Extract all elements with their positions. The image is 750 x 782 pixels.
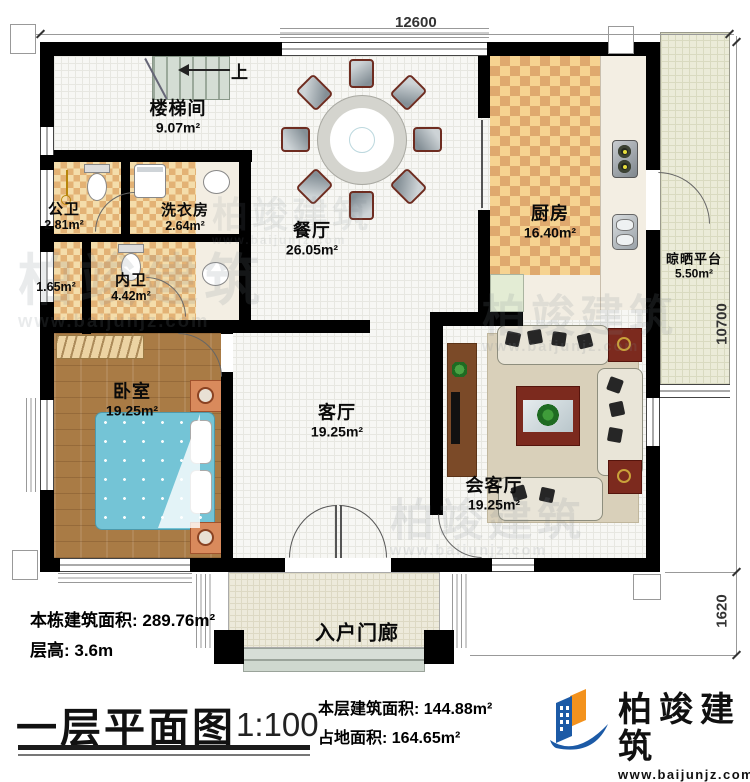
dim-tick: [732, 650, 741, 659]
room-label-dining: 餐厅 26.05m²: [286, 221, 338, 258]
brand-url: www.baijunjz.com: [618, 767, 750, 782]
room-name: 楼梯间: [150, 99, 207, 120]
room-area: 9.07m²: [156, 119, 200, 135]
porch-pillar: [214, 630, 244, 664]
room-area: 19.25m²: [468, 496, 520, 512]
kitchen-passage-floor: [523, 275, 600, 320]
porch-pillar: [424, 630, 454, 664]
door-gap-bedroom: [221, 334, 233, 372]
dim-label-right: 10700: [714, 303, 731, 345]
toilet-bowl: [87, 173, 107, 201]
wall-kitchen-left-lower: [478, 210, 490, 325]
room-area: 2.81m²: [44, 218, 84, 232]
room-area: 5.50m²: [675, 268, 713, 282]
title-underline-thick: [18, 745, 310, 750]
window-bottom-bedroom: [60, 558, 190, 572]
room-area: 19.25m²: [106, 402, 158, 418]
wall-bath-divider: [40, 234, 251, 242]
dim-label-porch: 1620: [714, 594, 731, 627]
wall-stair-bath: [40, 150, 252, 162]
wall-kitchen-left-upper: [478, 56, 490, 118]
toilet-tank: [84, 164, 110, 173]
porch-step: [243, 660, 425, 672]
room-area: 1.65m²: [36, 280, 76, 294]
sofa-pillow: [539, 487, 556, 504]
platform-railing: [660, 384, 730, 398]
room-area: 19.25m²: [311, 423, 363, 439]
window-left-stairwell: [40, 127, 54, 155]
room-label-public-bath: 公卫 2.81m²: [44, 201, 84, 233]
title-underline-thin: [18, 754, 310, 756]
room-name: 入户门廊: [315, 623, 399, 646]
window-sill: [58, 573, 192, 586]
end-table-deco: [617, 469, 631, 483]
room-label-laundry: 洗衣房 2.64m²: [161, 202, 209, 234]
dim-ext-line: [665, 572, 736, 573]
room-area: 16.40m²: [524, 224, 576, 240]
laundry-sink: [203, 170, 230, 194]
room-name: 晾晒平台: [666, 253, 722, 268]
entrance-door-gap: [285, 558, 391, 572]
wall-left: [40, 42, 54, 572]
room-name: 洗衣房: [161, 202, 209, 219]
nightstand-lamp: [197, 387, 214, 404]
land-area-text: 占地面积: 164.65m²: [318, 725, 492, 754]
corner-column: [633, 574, 661, 600]
dining-chair: [349, 191, 374, 220]
stairs-arrow-head: [178, 64, 189, 76]
dining-table-center: [349, 127, 375, 153]
room-label-platform: 晾晒平台 5.50m²: [666, 253, 722, 282]
room-name: 卧室: [113, 382, 151, 403]
stats-block: 本栋建筑面积: 289.76m² 层高: 3.6m: [30, 606, 215, 666]
cabinet-plant: [452, 362, 467, 377]
room-name: 餐厅: [293, 221, 331, 242]
washing-machine-panel: [137, 167, 163, 172]
window-bottom-reception: [492, 558, 534, 572]
room-area: 26.05m²: [286, 241, 338, 257]
brand-logo: [548, 686, 612, 758]
stairs-arrow-line: [188, 69, 230, 71]
footer-areas: 本层建筑面积: 144.88m² 占地面积: 164.65m²: [318, 696, 492, 754]
porch-right-sill: [452, 574, 470, 648]
room-name: 公卫: [48, 201, 80, 218]
room-label-kitchen: 厨房 16.40m²: [524, 204, 576, 241]
dim-line-right: [736, 36, 737, 656]
stat-building-total: 本栋建筑面积: 289.76m²: [30, 606, 215, 636]
entrance-door-leaf: [335, 505, 337, 558]
corner-column: [10, 24, 36, 54]
corner-column: [12, 550, 38, 580]
room-area: 2.64m²: [165, 219, 205, 233]
bath-sink: [202, 262, 229, 286]
table-plant: [537, 404, 559, 426]
room-label-closet: 1.65m²: [36, 280, 76, 294]
room-label-reception: 会客厅 19.25m²: [466, 476, 523, 513]
kitchen-counter: [600, 56, 646, 310]
toilet-tank: [118, 244, 144, 253]
stat-floor-height: 层高: 3.6m: [30, 636, 215, 666]
window-left-bedroom: [40, 400, 54, 490]
room-name: 客厅: [318, 403, 356, 424]
sofa-pillow: [527, 329, 543, 345]
kitchen-sink-basin: [616, 219, 634, 231]
brand-text-block: 柏竣建筑 www.baijunjz.com: [618, 692, 750, 782]
wardrobe: [56, 335, 144, 359]
window-top-dining: [282, 42, 487, 56]
room-label-stairwell: 楼梯间 9.07m²: [150, 99, 207, 136]
floor-area-text: 本层建筑面积: 144.88m²: [318, 696, 492, 725]
dining-chair: [349, 59, 374, 88]
room-label-bedroom: 卧室 19.25m²: [106, 382, 158, 419]
sofa-pillow: [505, 331, 522, 348]
end-table-deco: [617, 337, 631, 351]
entrance-door-leaf: [340, 505, 342, 558]
shower-cord: [66, 170, 68, 196]
room-area: 4.42m²: [111, 289, 151, 303]
wall-right: [646, 42, 660, 572]
window-sill: [26, 398, 39, 492]
wall-living-reception: [430, 312, 443, 515]
porch-step: [243, 648, 425, 660]
dining-chair: [281, 127, 310, 152]
scale-label: 1:100: [236, 706, 319, 744]
window-left-closet: [40, 252, 54, 302]
window-right-reception: [646, 398, 660, 446]
room-name: 会客厅: [466, 476, 523, 497]
room-label-private-bath: 内卫 4.42m²: [111, 272, 151, 304]
tv: [451, 392, 460, 444]
floor-plan-page: { "dimensions": { "top": "12600", "right…: [0, 0, 750, 768]
nightstand-lamp: [197, 529, 214, 546]
room-label-living: 客厅 19.25m²: [311, 403, 363, 440]
room-name: 厨房: [531, 204, 569, 225]
brand-logo-icon: [548, 686, 612, 758]
dim-label-top: 12600: [395, 14, 437, 31]
sofa-pillow: [609, 401, 626, 418]
bed-sheet-fold: [158, 414, 200, 528]
stairs-up-label: 上: [231, 58, 248, 83]
kitchen-sink-basin: [616, 234, 634, 246]
kitchen-sink-counter: [490, 274, 524, 312]
burner-dot: [623, 165, 627, 169]
dining-chair: [413, 127, 442, 152]
wall-bedroom-top: [40, 320, 370, 333]
room-name: 内卫: [115, 272, 147, 289]
sofa-pillow: [551, 331, 567, 347]
brand-name: 柏竣建筑: [618, 692, 750, 767]
dim-ext-line: [470, 655, 736, 656]
dim-line-top: [36, 34, 734, 35]
door-leaf-kitchen: [481, 120, 483, 208]
corner-column: [608, 26, 634, 54]
sofa-pillow: [607, 427, 623, 443]
room-label-porch: 入户门廊: [315, 623, 399, 646]
burner-dot: [623, 150, 627, 154]
